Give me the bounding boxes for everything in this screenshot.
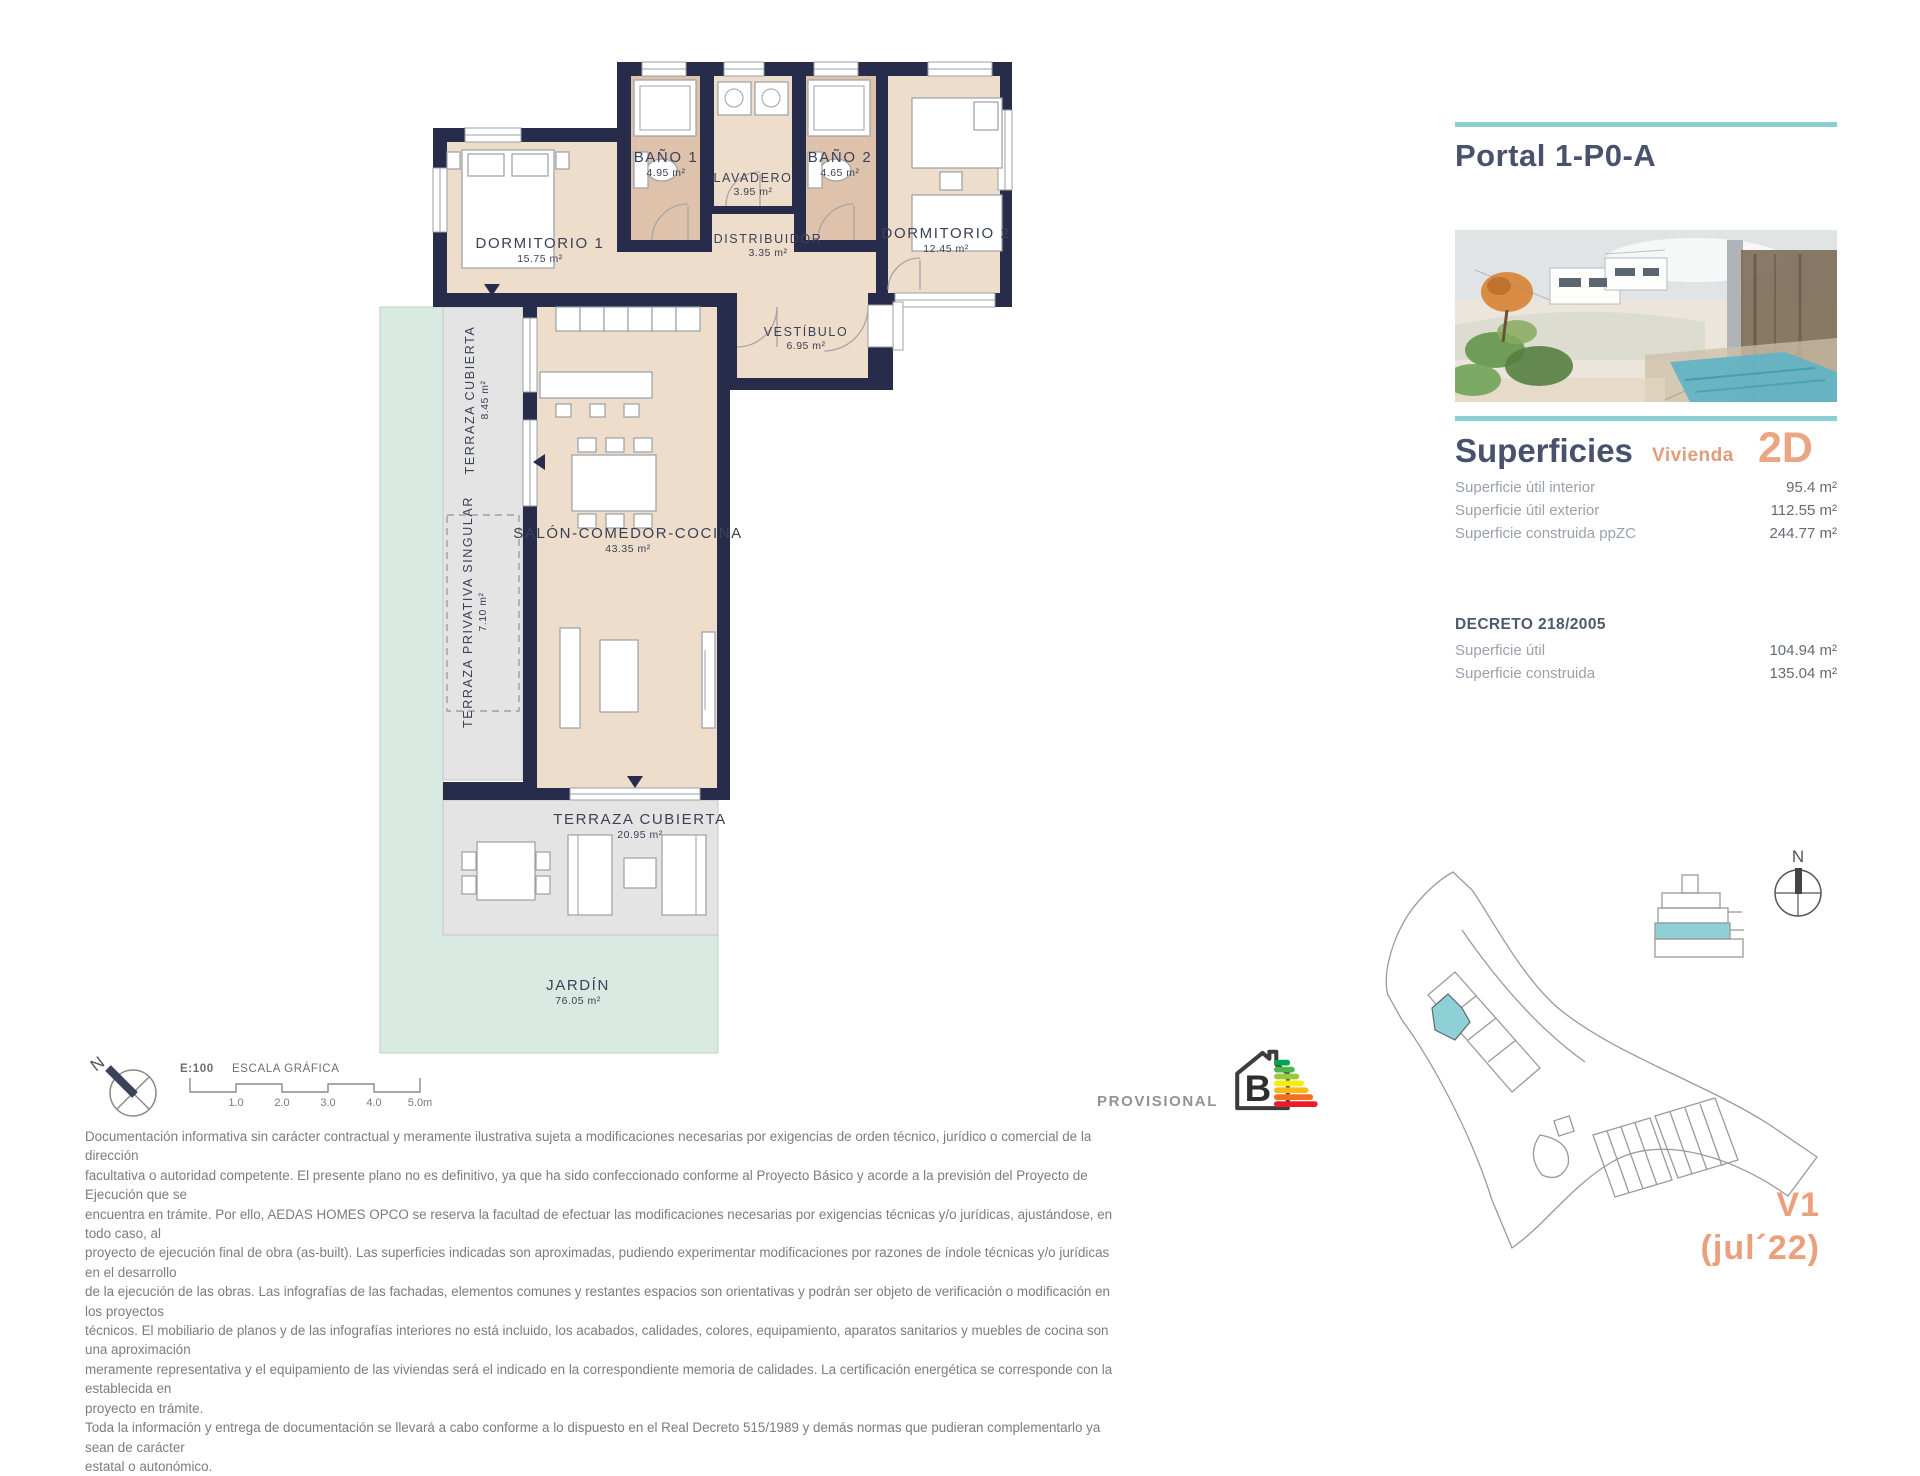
scale-bar: E:100 ESCALA GRÁFICA 1.0 2.0 3.0 4.0 5.0… — [180, 1062, 432, 1109]
superficie-row: Superficie útil exterior 112.55 m² — [1455, 502, 1837, 525]
svg-text:LAVADERO: LAVADERO — [713, 171, 792, 185]
svg-text:4.95 m²: 4.95 m² — [646, 167, 685, 179]
project-render-image — [1455, 230, 1837, 402]
terrace-wall-return — [443, 782, 527, 800]
svg-text:8.45 m²: 8.45 m² — [479, 380, 491, 419]
site-road — [1462, 930, 1585, 1062]
middle-divider — [1455, 416, 1837, 421]
decreto-title: DECRETO 218/2005 — [1455, 616, 1606, 634]
superficies-table: Superficie útil interior 95.4 m² Superfi… — [1455, 479, 1837, 548]
superficie-row: Superficie útil 104.94 m² — [1455, 642, 1837, 665]
svg-text:N: N — [1792, 850, 1804, 866]
svg-text:76.05 m²: 76.05 m² — [555, 995, 600, 1007]
svg-text:BAÑO 2: BAÑO 2 — [808, 149, 873, 166]
svg-text:ESCALA GRÁFICA: ESCALA GRÁFICA — [232, 1062, 339, 1075]
svg-text:TERRAZA CUBIERTA: TERRAZA CUBIERTA — [553, 811, 726, 828]
site-unit-cluster — [1428, 972, 1540, 1092]
svg-text:E:100: E:100 — [180, 1063, 214, 1075]
svg-text:PROVISIONAL: PROVISIONAL — [1097, 1093, 1218, 1110]
building-section-icon — [1655, 875, 1744, 957]
floor-plan: DORMITORIO 1 15.75 m² BAÑO 1 4.95 m² LAV… — [0, 0, 1350, 1280]
svg-text:JARDÍN: JARDÍN — [546, 977, 610, 994]
superficie-row: Superficie construida ppZC 244.77 m² — [1455, 525, 1837, 548]
svg-text:43.35 m²: 43.35 m² — [605, 543, 650, 555]
vivienda-label: Vivienda — [1652, 445, 1734, 467]
svg-text:6.95 m²: 6.95 m² — [786, 340, 825, 352]
svg-text:3.35 m²: 3.35 m² — [748, 247, 787, 259]
energy-scale-bars — [1274, 1060, 1318, 1107]
svg-text:N: N — [87, 1053, 108, 1076]
legal-disclaimer: Documentación informativa sin carácter c… — [85, 1127, 1117, 1476]
site-lower-blocks — [1533, 1098, 1738, 1197]
svg-text:3.0: 3.0 — [320, 1097, 335, 1109]
side-terrace — [443, 307, 523, 780]
site-north-compass: N — [1775, 850, 1821, 916]
site-highlighted-unit — [1432, 994, 1470, 1040]
compass-needle — [1795, 868, 1802, 894]
svg-text:VESTÍBULO: VESTÍBULO — [764, 324, 849, 339]
svg-text:7.10 m²: 7.10 m² — [477, 592, 489, 631]
svg-text:20.95 m²: 20.95 m² — [617, 829, 662, 841]
svg-text:BAÑO 1: BAÑO 1 — [634, 149, 699, 166]
svg-text:4.0: 4.0 — [366, 1097, 381, 1109]
superficies-title: Superficies — [1455, 432, 1633, 470]
svg-text:DISTRIBUIDOR: DISTRIBUIDOR — [714, 232, 823, 246]
floor-distribuidor — [617, 252, 876, 293]
superficie-row: Superficie útil interior 95.4 m² — [1455, 479, 1837, 502]
energy-rating-label: PROVISIONAL B — [1097, 1052, 1318, 1110]
svg-text:DORMITORIO 1: DORMITORIO 1 — [476, 235, 605, 252]
decreto-table: Superficie útil 104.94 m² Superficie con… — [1455, 642, 1837, 688]
svg-text:15.75 m²: 15.75 m² — [517, 253, 562, 265]
svg-text:SALÓN-COMEDOR-COCINA: SALÓN-COMEDOR-COCINA — [513, 525, 743, 542]
room-label-jardin: JARDÍN 76.05 m² — [546, 977, 610, 1007]
svg-text:12.45 m²: 12.45 m² — [923, 243, 968, 255]
svg-text:TERRAZA CUBIERTA: TERRAZA CUBIERTA — [463, 326, 477, 475]
version-label: V1 (jul´22) — [1640, 1184, 1820, 1270]
vivienda-type: 2D — [1758, 424, 1813, 473]
svg-text:5.0m: 5.0m — [408, 1097, 432, 1109]
energy-rating-letter: B — [1245, 1068, 1272, 1109]
svg-text:DORMITORIO 2: DORMITORIO 2 — [882, 225, 1011, 242]
compass-icon: N — [87, 1053, 156, 1116]
svg-text:4.65 m²: 4.65 m² — [820, 167, 859, 179]
svg-text:2.0: 2.0 — [274, 1097, 289, 1109]
page-title: Portal 1-P0-A — [1455, 138, 1656, 174]
top-divider — [1455, 122, 1837, 127]
superficie-row: Superficie construida 135.04 m² — [1455, 665, 1837, 688]
svg-text:TERRAZA PRIVATIVA SINGULAR: TERRAZA PRIVATIVA SINGULAR — [461, 496, 475, 728]
svg-text:3.95 m²: 3.95 m² — [733, 186, 772, 198]
svg-text:1.0: 1.0 — [228, 1097, 243, 1109]
